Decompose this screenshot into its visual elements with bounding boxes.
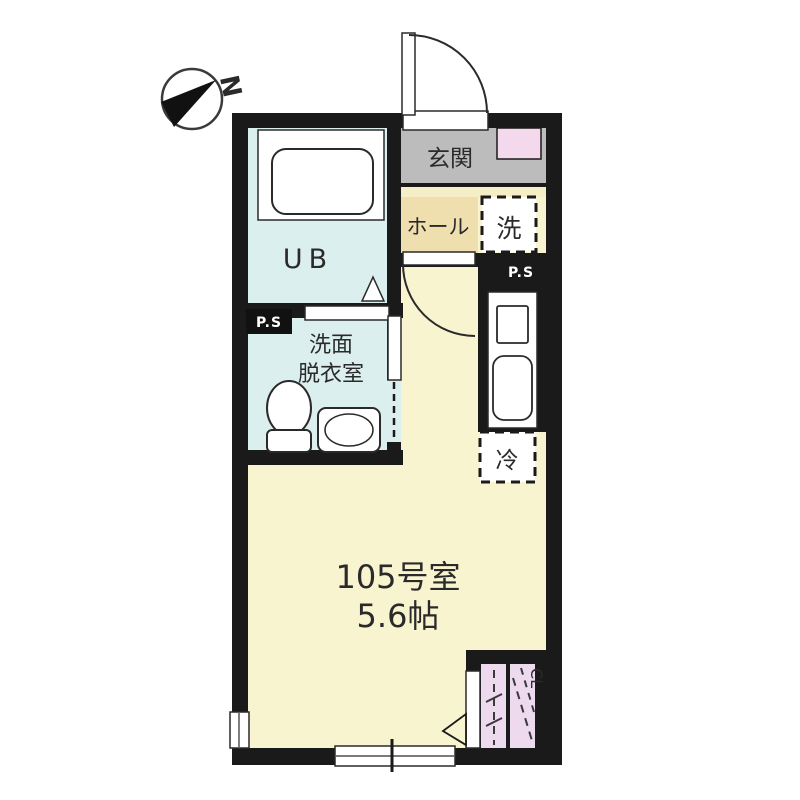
- wall-left: [232, 113, 248, 765]
- unit-bath-label: UB: [283, 244, 333, 275]
- toilet-icon: [267, 381, 311, 452]
- entrance-label: 玄関: [427, 146, 473, 172]
- washroom-label-line1: 洗面: [309, 333, 353, 358]
- hall-label: ホール: [407, 215, 470, 239]
- main-room-name: 105号室: [335, 558, 460, 596]
- toilet-tank: [267, 430, 311, 452]
- closet-divider: [506, 664, 510, 748]
- pipe-space-2-label: P.S: [508, 265, 534, 281]
- stove-icon: [497, 306, 528, 343]
- washroom-door-leaf: [388, 316, 401, 380]
- washroom-top-door: [305, 306, 389, 320]
- kitchen-unit-icon: [488, 292, 537, 428]
- floorplan-canvas: N: [0, 0, 800, 800]
- main-room-size: 5.6帖: [357, 597, 440, 635]
- toilet-bowl: [267, 381, 311, 435]
- refrigerator-label: 冷: [496, 448, 519, 474]
- kitchen-sink-icon: [493, 356, 532, 420]
- pipe-space-1-label: P.S: [256, 315, 282, 331]
- shoe-cabinet-icon: [497, 128, 541, 159]
- wall-right: [546, 113, 562, 765]
- entrance-door-arc-icon: [409, 35, 487, 113]
- wall-washroom-bottom: [232, 450, 403, 465]
- washroom-label-line2: 脱衣室: [298, 362, 364, 387]
- entrance-step-edge: [398, 183, 546, 187]
- floorplan-drawing: N: [0, 0, 800, 800]
- closet-label: CL: [527, 668, 546, 688]
- room-door-leaf: [403, 252, 475, 265]
- entrance-step: [398, 187, 546, 197]
- closet-door-leaf: [466, 671, 480, 748]
- entrance-door-leaf: [402, 33, 415, 115]
- bathtub-icon: [272, 149, 373, 214]
- sink-basin: [325, 414, 373, 446]
- sink-icon: [318, 408, 380, 452]
- compass-north-label: N: [213, 73, 247, 101]
- washer-label: 洗: [496, 214, 521, 243]
